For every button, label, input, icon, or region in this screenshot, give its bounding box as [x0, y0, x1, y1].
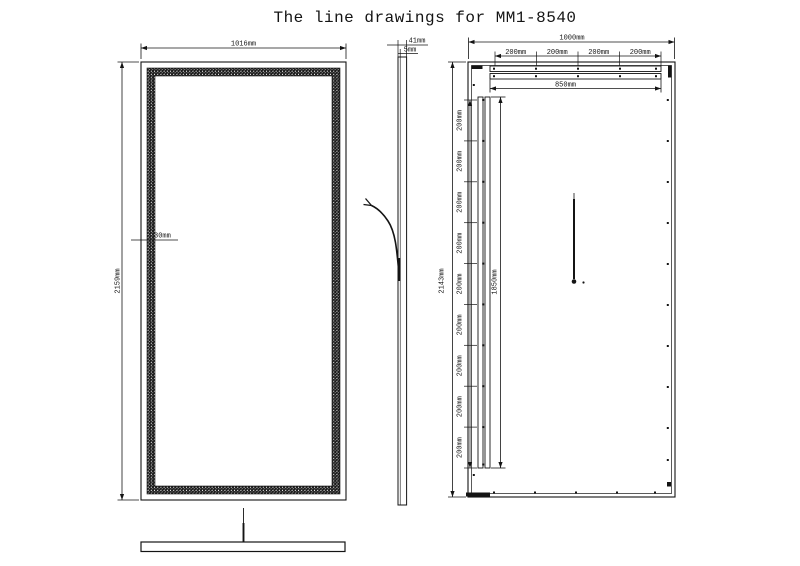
cord-small-dot [582, 281, 584, 283]
back-view: 1000mm 200mm 200mm 200mm 200mm [439, 35, 676, 498]
top-segment-dim-label: 200mm [505, 49, 526, 57]
rail-length-dim-label: 1850mm [492, 269, 500, 294]
front-height-dim-label: 2159mm [115, 268, 123, 293]
side-depth-dim-label: 41mm [409, 38, 426, 46]
side-segment-dim-label: 200mm [457, 314, 465, 335]
side-view: 41mm 5mm [364, 38, 429, 506]
side-segment-dim-label: 200mm [457, 192, 465, 213]
bottom-view-bar [141, 508, 345, 552]
back-height-dim-label: 2143mm [439, 268, 447, 293]
side-segment-dim-label: 200mm [457, 437, 465, 458]
back-width-dim-label: 1000mm [559, 35, 584, 43]
top-segment-dim-label: 200mm [588, 49, 609, 57]
side-segment-dim-label: 200mm [457, 151, 465, 172]
page-title: The line drawings for MM1-8540 [273, 9, 576, 27]
side-segment-dim-label: 200mm [457, 110, 465, 131]
drawing-sheet: The line drawings for MM1-8540 1016mm 21… [0, 0, 800, 566]
side-glass-dim-label: 5mm [404, 47, 417, 55]
cord-plug-dot [572, 279, 577, 284]
front-border-dim-label: 30mm [154, 233, 171, 241]
mirror-surface [155, 76, 332, 486]
side-segment-dim-label: 200mm [457, 273, 465, 294]
rail-span-dim-label: 850mm [555, 82, 576, 90]
top-segment-dim-label: 200mm [547, 49, 568, 57]
front-view: 1016mm 2159mm 30mm [115, 41, 347, 552]
side-segment-dim-label: 200mm [457, 396, 465, 417]
front-width-dim-label: 1016mm [231, 41, 256, 49]
side-segment-dim-label: 200mm [457, 233, 465, 254]
top-segment-dim-label: 200mm [630, 49, 651, 57]
side-segment-dim-label: 200mm [457, 355, 465, 376]
power-cord-icon [364, 199, 400, 282]
technical-drawing: The line drawings for MM1-8540 1016mm 21… [0, 0, 800, 566]
